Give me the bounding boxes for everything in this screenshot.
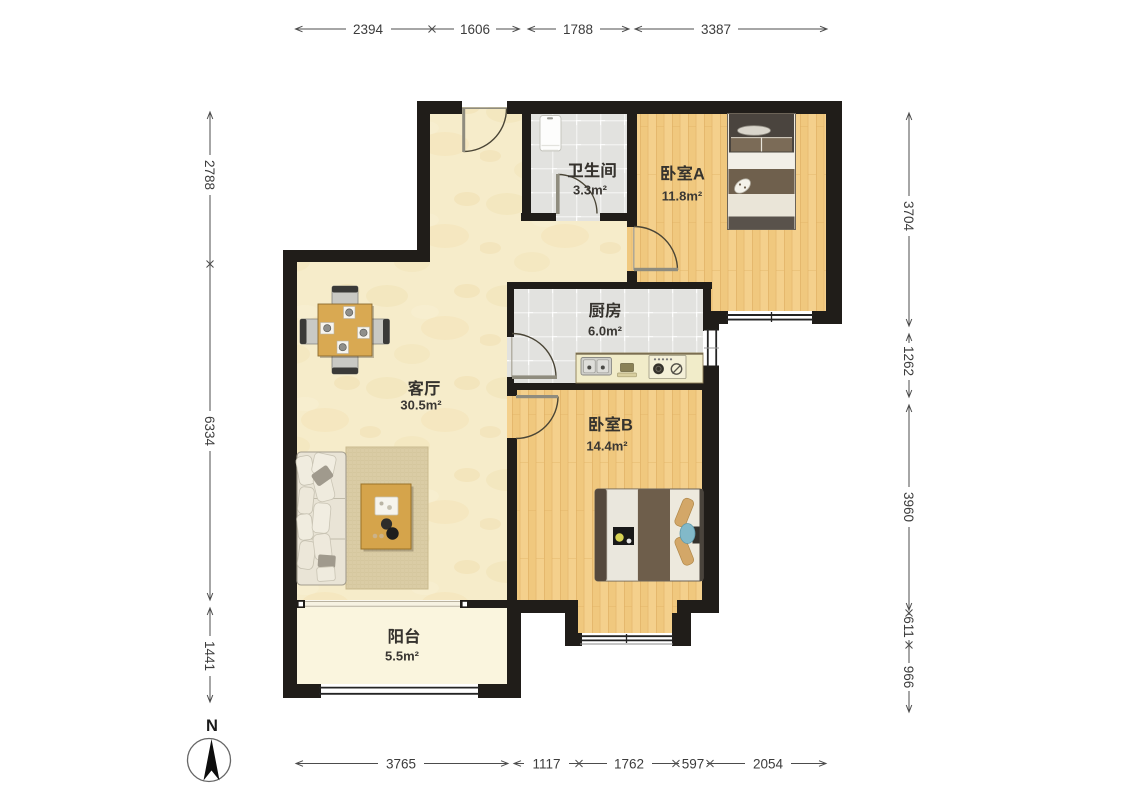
svg-text:1606: 1606 — [460, 22, 490, 37]
svg-text:3387: 3387 — [701, 22, 731, 37]
svg-text:2394: 2394 — [353, 22, 384, 37]
svg-text:14.4m²: 14.4m² — [586, 439, 628, 454]
svg-text:3765: 3765 — [386, 756, 416, 771]
svg-text:1788: 1788 — [563, 22, 593, 37]
svg-text:1762: 1762 — [614, 756, 644, 771]
svg-text:6334: 6334 — [202, 416, 217, 447]
svg-text:966: 966 — [901, 666, 916, 689]
svg-text:611: 611 — [901, 616, 916, 638]
svg-text:1117: 1117 — [532, 756, 560, 771]
svg-text:3704: 3704 — [901, 201, 916, 232]
svg-text:N: N — [206, 717, 218, 735]
svg-text:3.3m²: 3.3m² — [573, 183, 608, 198]
svg-text:11.8m²: 11.8m² — [662, 189, 703, 204]
svg-text:2788: 2788 — [202, 160, 217, 190]
svg-text:3960: 3960 — [901, 492, 916, 522]
svg-text:597: 597 — [682, 756, 705, 771]
svg-text:5.5m²: 5.5m² — [385, 649, 420, 664]
svg-text:A: A — [693, 165, 705, 183]
svg-text:1262: 1262 — [901, 346, 916, 376]
svg-text:30.5m²: 30.5m² — [400, 398, 442, 413]
svg-text:2054: 2054 — [753, 756, 784, 771]
svg-text:B: B — [621, 416, 633, 434]
svg-text:6.0m²: 6.0m² — [588, 324, 623, 339]
svg-text:1441: 1441 — [202, 641, 217, 671]
